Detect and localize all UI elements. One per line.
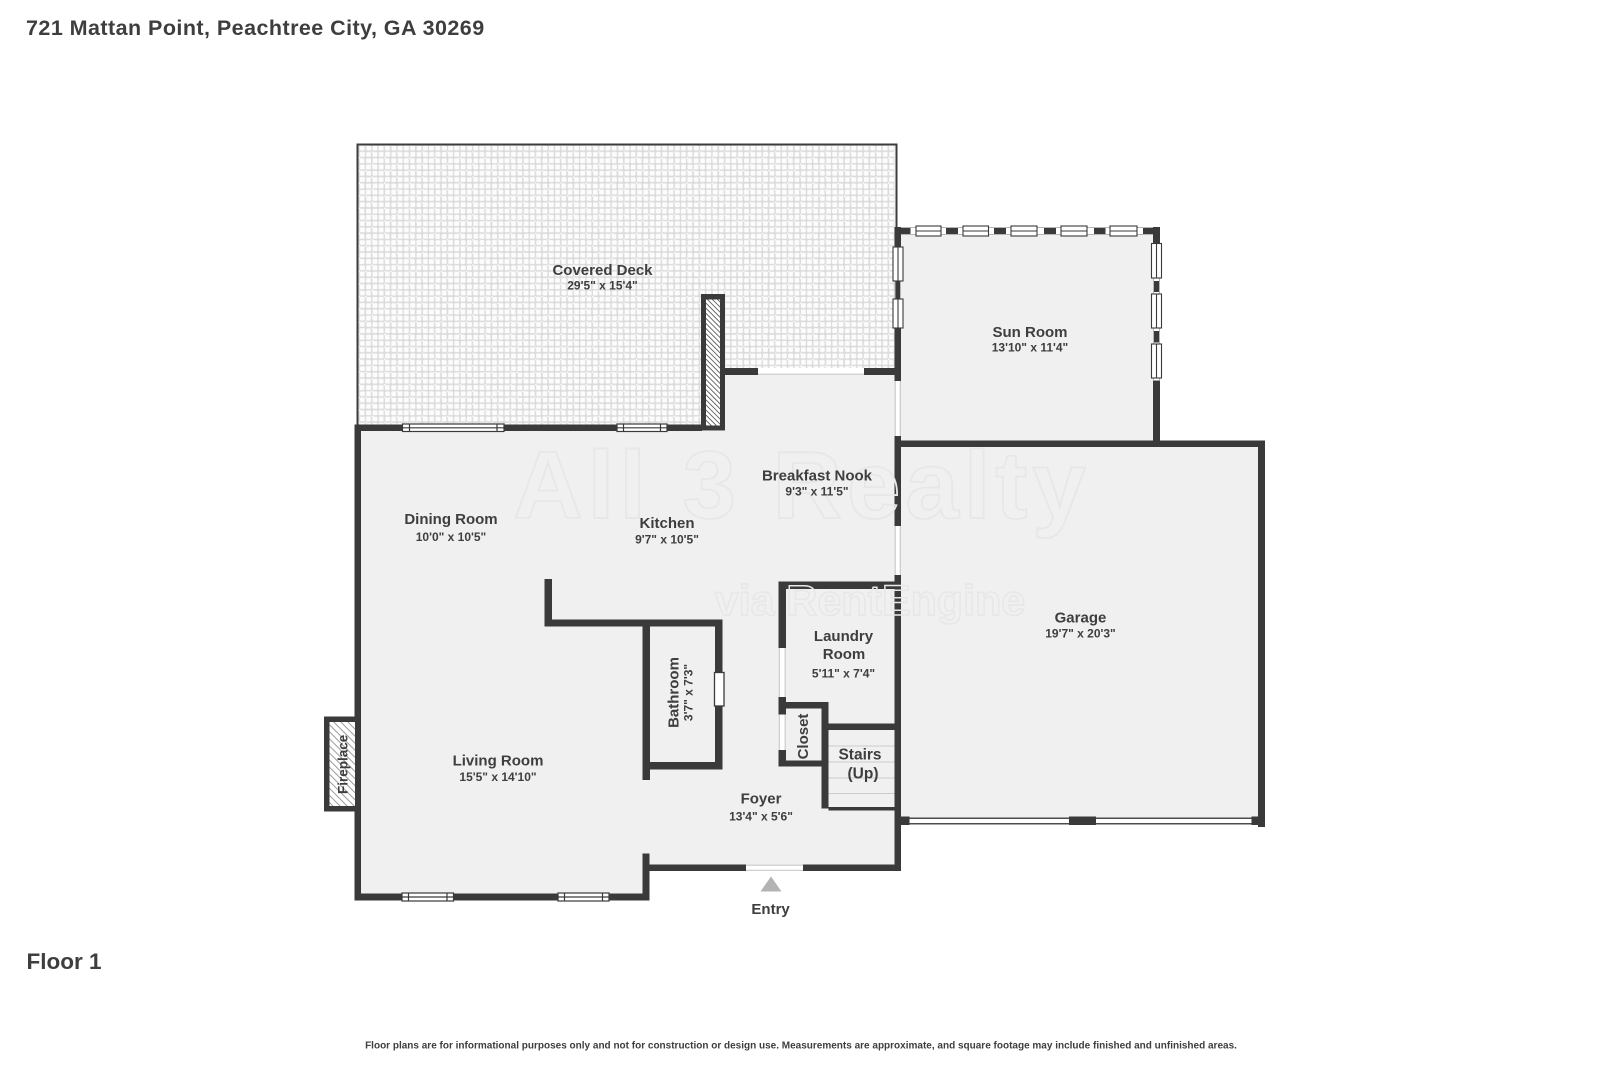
svg-text:9'3" x 11'5": 9'3" x 11'5" <box>785 485 848 499</box>
svg-text:Stairs: Stairs <box>838 747 881 764</box>
svg-text:Foyer: Foyer <box>741 791 782 808</box>
svg-text:Breakfast Nook: Breakfast Nook <box>762 468 873 485</box>
svg-text:via RentEngine: via RentEngine <box>715 577 1026 625</box>
svg-text:19'7" x 20'3": 19'7" x 20'3" <box>1045 627 1115 641</box>
svg-text:5'11" x 7'4": 5'11" x 7'4" <box>812 667 875 681</box>
svg-text:Laundry: Laundry <box>814 628 874 645</box>
svg-text:Bathroom: Bathroom <box>666 657 683 728</box>
svg-text:Covered Deck: Covered Deck <box>552 262 653 279</box>
svg-text:Floor 1: Floor 1 <box>27 949 102 974</box>
svg-text:Kitchen: Kitchen <box>639 515 694 532</box>
svg-text:Living Room: Living Room <box>453 752 544 769</box>
svg-text:13'10" x 11'4": 13'10" x 11'4" <box>992 341 1068 355</box>
svg-text:9'7" x 10'5": 9'7" x 10'5" <box>635 533 699 547</box>
svg-text:Entry: Entry <box>751 901 790 918</box>
svg-text:Closet: Closet <box>795 714 812 760</box>
svg-text:(Up): (Up) <box>848 766 879 783</box>
svg-text:Room: Room <box>823 646 866 663</box>
svg-text:15'5" x 14'10": 15'5" x 14'10" <box>459 770 536 784</box>
svg-text:721 Mattan Point, Peachtree Ci: 721 Mattan Point, Peachtree City, GA 302… <box>26 16 485 40</box>
svg-text:3'7" x 7'3": 3'7" x 7'3" <box>682 664 696 721</box>
svg-text:Garage: Garage <box>1055 610 1107 627</box>
svg-text:29'5" x 15'4": 29'5" x 15'4" <box>567 279 637 293</box>
svg-text:13'4" x 5'6": 13'4" x 5'6" <box>729 810 793 824</box>
svg-text:10'0" x 10'5": 10'0" x 10'5" <box>416 530 486 544</box>
svg-text:Floor plans are for informatio: Floor plans are for informational purpos… <box>365 1041 1237 1052</box>
svg-text:Fireplace: Fireplace <box>336 734 351 794</box>
svg-text:Sun Room: Sun Room <box>993 324 1068 341</box>
svg-text:Dining Room: Dining Room <box>404 511 497 528</box>
